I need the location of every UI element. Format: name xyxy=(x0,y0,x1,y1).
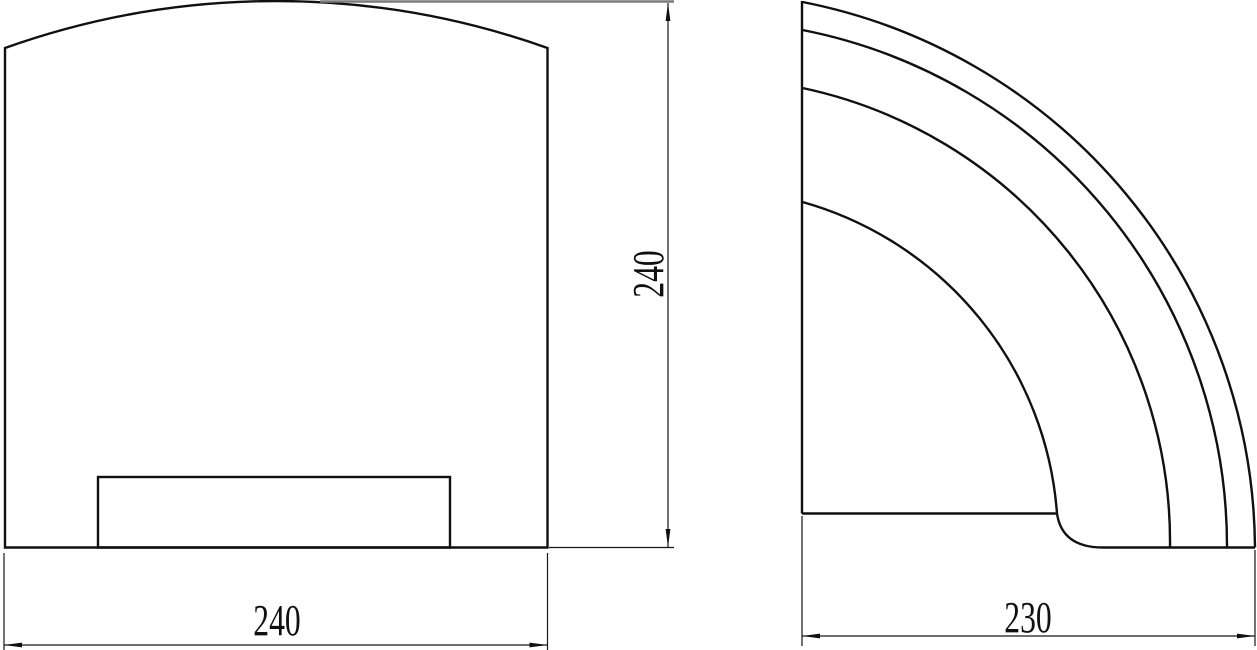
technical-drawing-canvas: 240 240 230 xyxy=(0,0,1257,650)
side-profile-arc-outer xyxy=(803,2,1256,548)
depth-dimension-value: 230 xyxy=(1004,594,1052,642)
width-arrowhead-right xyxy=(530,643,548,648)
width-dimension-value: 240 xyxy=(253,597,301,645)
side-profile-arc-third xyxy=(803,88,1171,548)
front-view-outline xyxy=(5,1,548,547)
technical-drawing-page: 240 240 230 xyxy=(0,0,1257,650)
height-arrowhead-bottom xyxy=(666,529,671,547)
vent-outlet-rectangle xyxy=(98,477,450,548)
width-arrowhead-left xyxy=(4,643,22,648)
front-height-dimension: 240 xyxy=(320,2,674,548)
front-width-dimension: 240 xyxy=(4,553,548,650)
depth-arrowhead-right xyxy=(1237,634,1255,639)
side-depth-dimension: 230 xyxy=(802,516,1255,646)
height-dimension-value: 240 xyxy=(625,250,673,298)
depth-arrowhead-left xyxy=(802,634,820,639)
side-view xyxy=(802,1,1255,548)
side-profile-arc-inner-with-fillet xyxy=(803,202,1104,548)
front-view xyxy=(5,1,548,547)
height-arrowhead-top xyxy=(666,3,671,21)
